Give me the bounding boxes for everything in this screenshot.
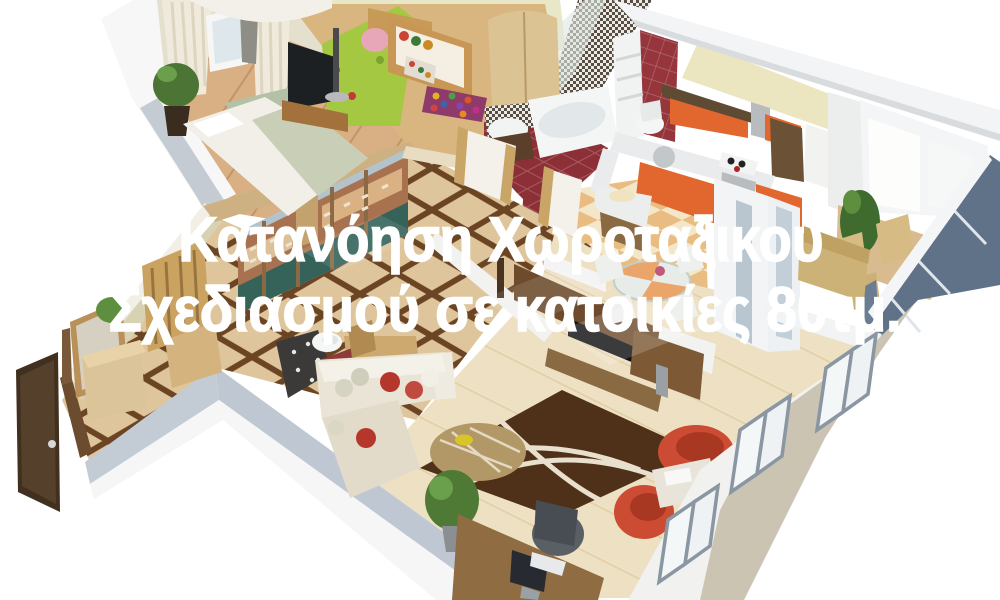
svg-text:Σχεδιασμού σε κατοικίες 80τμ.: Σχεδιασμού σε κατοικίες 80τμ. — [109, 275, 902, 345]
svg-text:Κατανόηση Χωροταξικού: Κατανόηση Χωροταξικού — [179, 205, 824, 275]
